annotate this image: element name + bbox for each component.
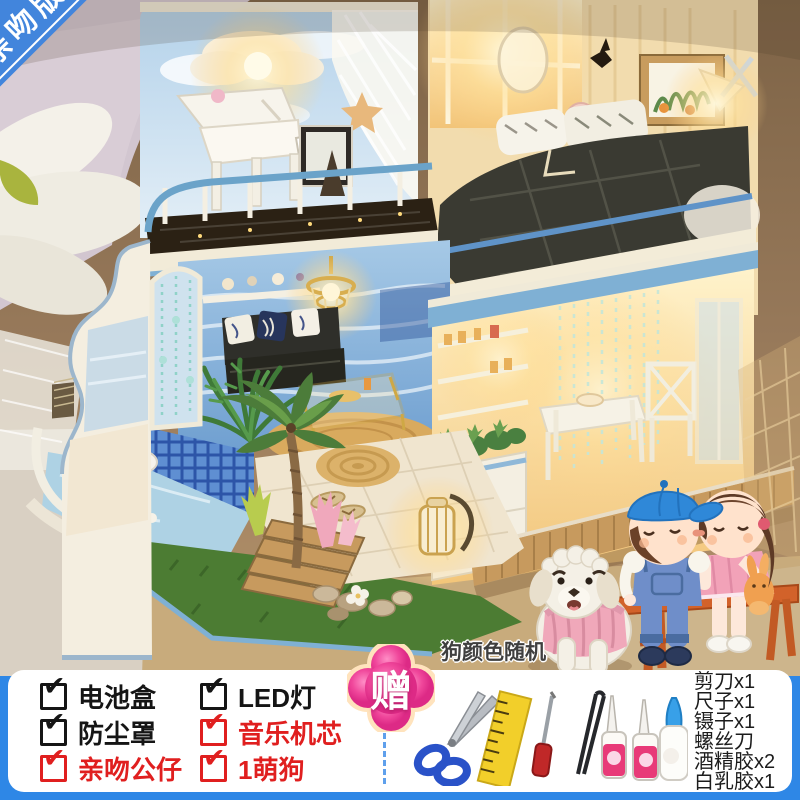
tools-list: 剪刀x1 尺子x1 镊子x1 螺丝刀 酒精胶x2 白乳胶x1 [694,672,796,792]
gift-badge-label: 赠 [347,644,435,732]
bed [430,98,760,328]
checkbox-icon: ✔ [200,683,227,710]
wooden-steps [242,520,364,607]
tools-list-item: 白乳胶x1 [694,772,796,792]
kitchen-dining [428,242,758,585]
checklist-label: 音乐机芯 [238,714,342,751]
dining-table [540,394,646,480]
piano [178,88,322,210]
checkbox-icon: ✔ [200,719,227,746]
checklist-label: 亲吻公仔 [78,750,182,787]
stones [313,586,412,620]
kissing-dolls-figurine [623,480,774,665]
piano-terrace [140,2,438,276]
fern-plant [202,360,300,440]
tweezers-image [578,692,604,774]
tools-list-item: 酒精胶x2 [694,752,796,772]
checklist-label: 1萌狗 [238,750,304,787]
checklist-item-cute-dog: ✔ 1萌狗 [200,750,342,786]
left-wavy-wall [52,241,200,660]
checkbox-icon: ✔ [200,755,227,782]
base-platform [470,468,794,600]
glue-bottles-image [602,696,658,780]
bedroom [404,0,768,328]
white-flower [346,585,369,606]
patio [242,430,524,620]
dollhouse-photo [0,0,800,676]
swimming-pool [30,428,336,581]
background-wall [0,0,800,676]
dollhouse-illustration [30,0,800,660]
tools-list-item: 镊子x1 [694,712,796,732]
gift-badge: 赠 [347,644,435,732]
lantern [382,476,494,588]
bunny-toy [744,553,774,615]
corner-ribbon: 亲吻版 [0,0,128,128]
cloud-lamp [190,4,326,140]
tools-image [400,682,688,786]
checklist-item-kissing-dolls: ✔ 亲吻公仔 [40,750,200,786]
checklist-label: 电池盒 [78,678,156,715]
living-room [178,240,450,468]
pool-float [97,436,157,475]
coral-plants [241,484,361,548]
dashed-divider [383,724,386,784]
palm-tree [218,372,346,568]
ladder [398,256,456,364]
screwdriver-image [532,692,555,777]
tools-list-item: 螺丝刀 [694,732,796,752]
coffee-table [300,374,404,444]
gold-mesh-fabric [738,336,800,560]
chandelier [285,250,377,342]
tools-list-item: 剪刀x1 [694,672,796,692]
ribbon-label: 亲吻版 [0,0,74,74]
sofa [222,307,346,394]
dog-color-note: 狗颜色随机 [441,636,546,666]
rope-rug [316,445,400,487]
flip-flops [310,489,366,523]
planter-cabinet [432,419,526,580]
checklist-label: LED灯 [238,678,316,715]
checkbox-icon: ✔ [40,755,67,782]
terrace-railing [148,166,432,232]
product-image: 亲吻版 狗颜色随机 ✔ 电池盒 ✔ LED灯 ✔ 防尘罩 ✔ 音乐机芯 ✔ [0,0,800,800]
chair [648,364,694,462]
vignette [0,0,800,70]
included-items-checklist: ✔ 电池盒 ✔ LED灯 ✔ 防尘罩 ✔ 音乐机芯 ✔ 亲吻公仔 ✔ 1萌狗 [40,678,342,786]
checklist-label: 防尘罩 [78,714,156,751]
checkbox-icon: ✔ [40,683,67,710]
white-glue-bottle-image [660,698,688,780]
boy-doll [623,480,725,665]
lily-flowers [0,82,155,470]
checkbox-icon: ✔ [40,719,67,746]
girl-doll [692,490,774,652]
tools-list-item: 尺子x1 [694,692,796,712]
